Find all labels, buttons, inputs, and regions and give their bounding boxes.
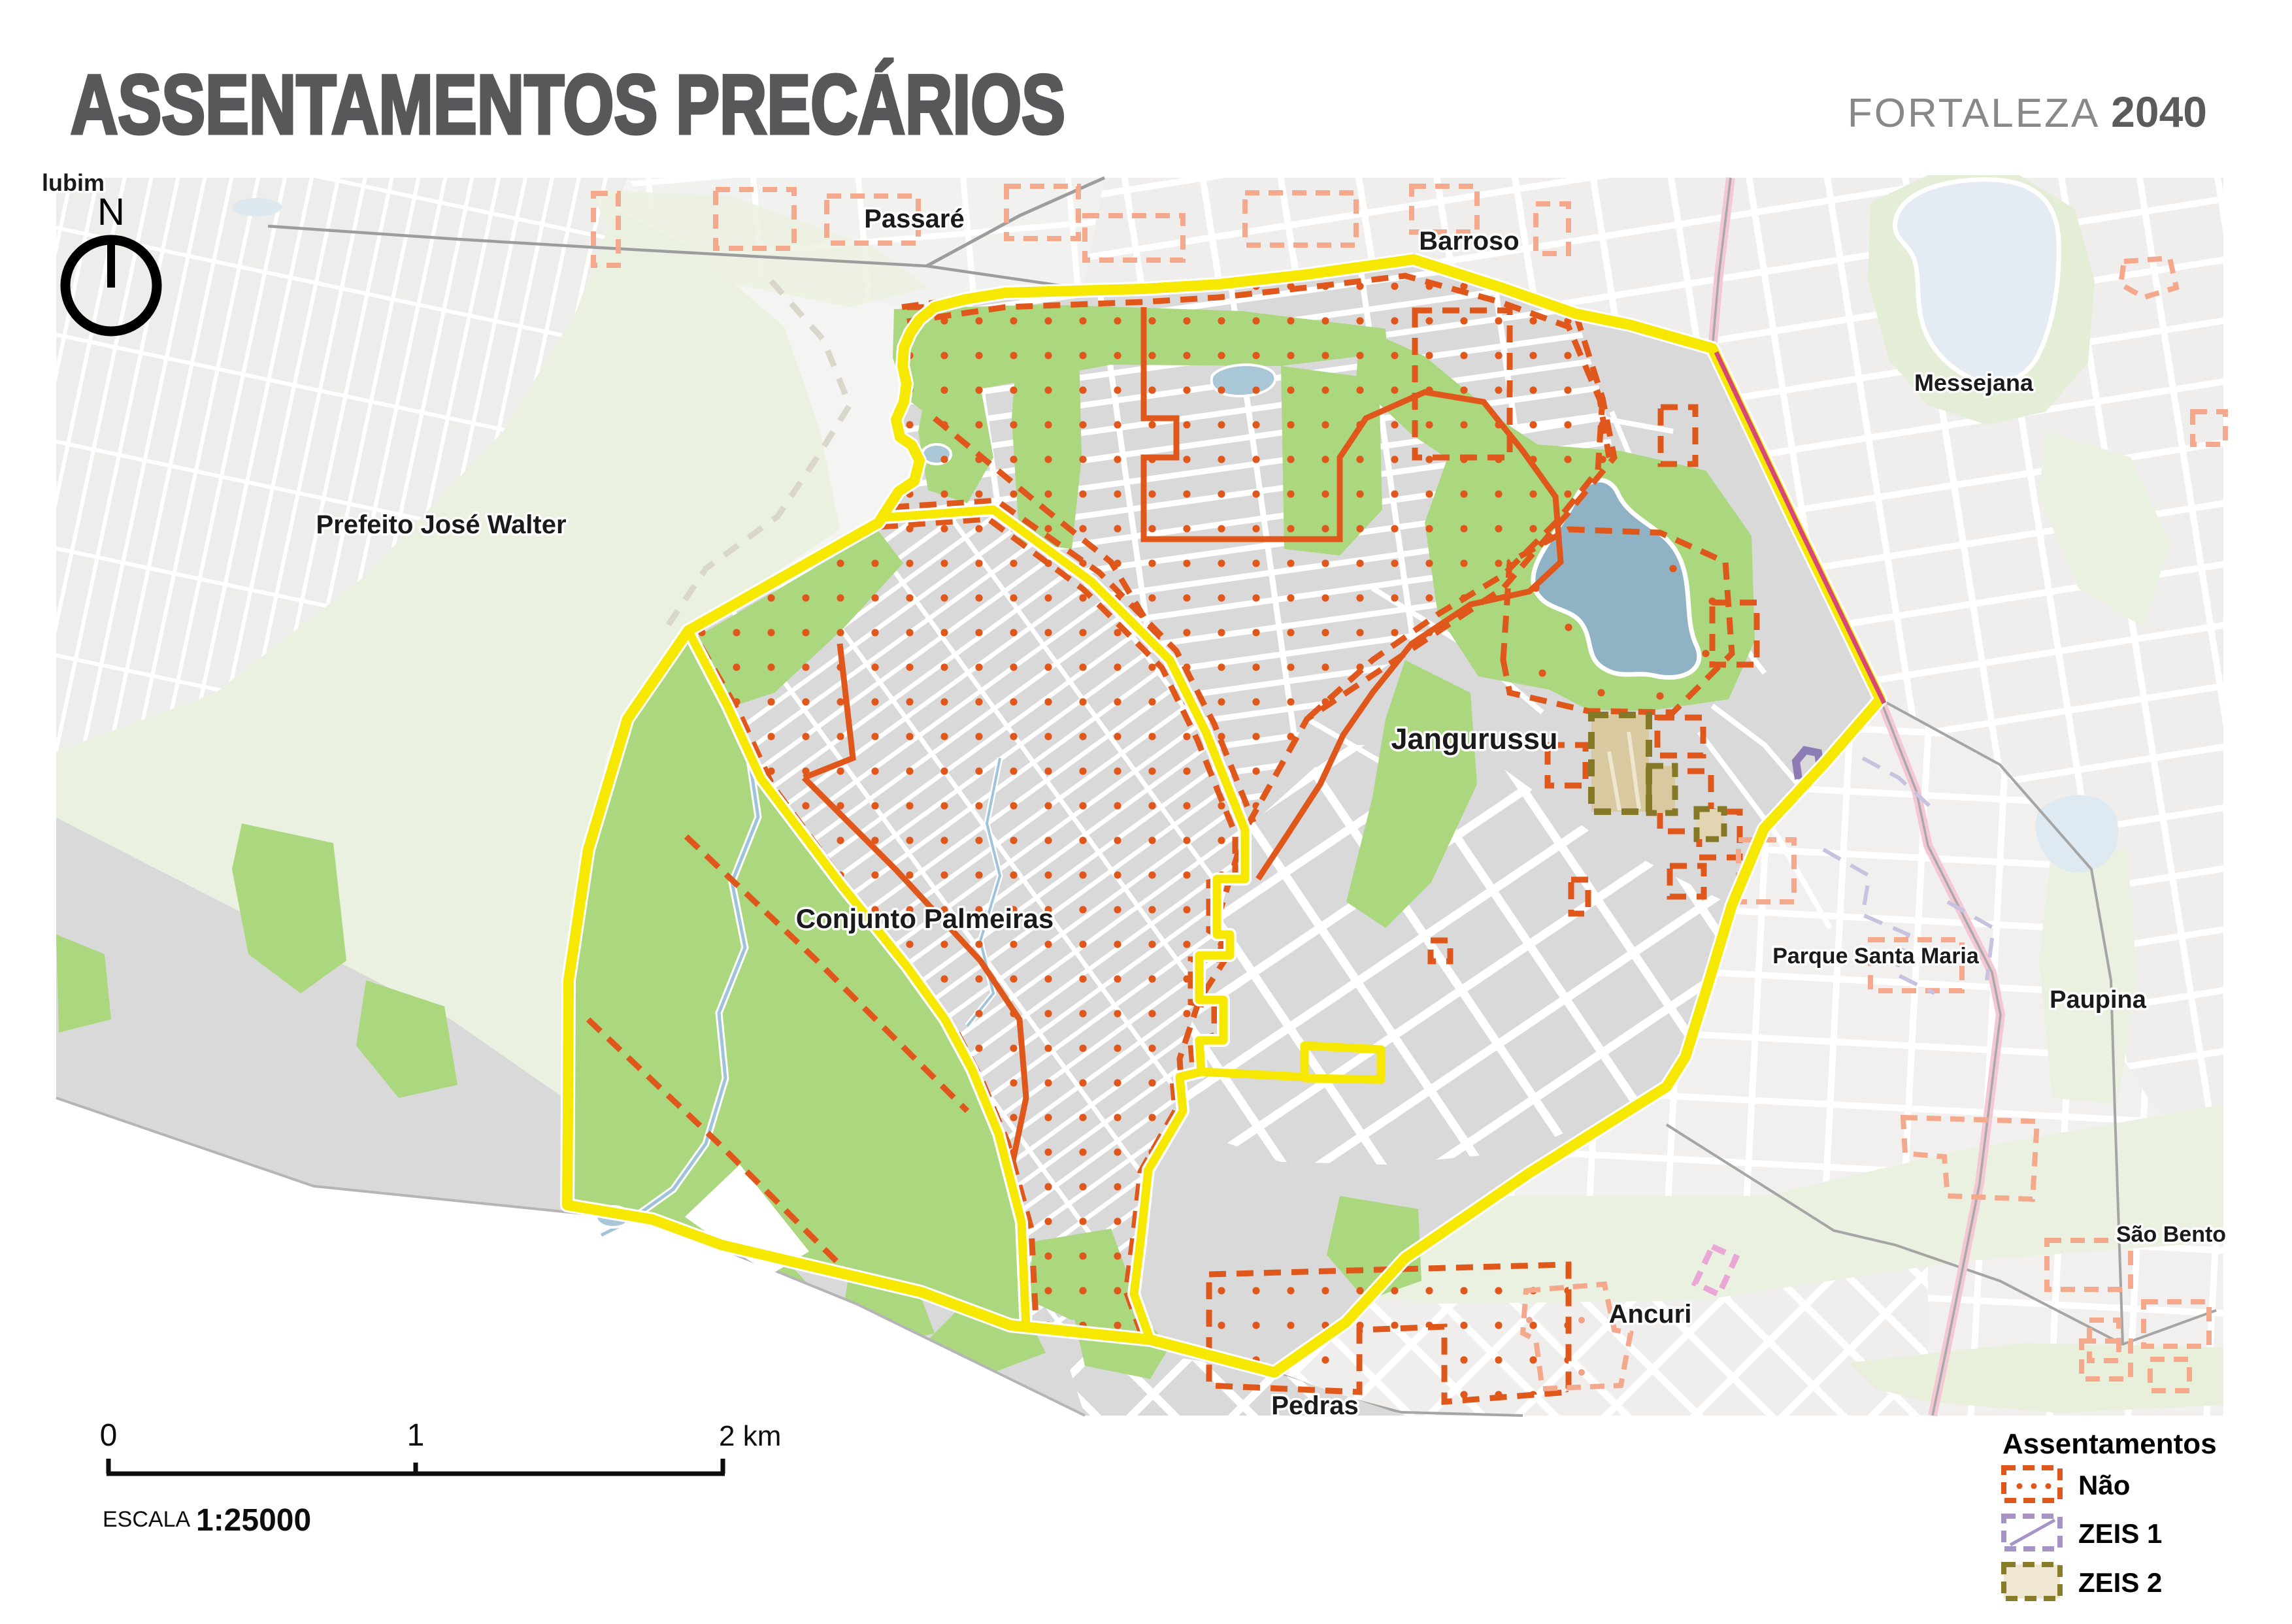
svg-text:Parque Santa Maria: Parque Santa Maria (1772, 944, 1980, 969)
svg-text:Jangurussu: Jangurussu (1391, 722, 1557, 755)
svg-text:Conjunto Palmeiras: Conjunto Palmeiras (796, 903, 1054, 934)
svg-text:0: 0 (100, 1418, 118, 1453)
svg-text:FORTALEZA 2040: FORTALEZA 2040 (1848, 88, 2207, 136)
svg-text:N: N (97, 191, 125, 233)
svg-text:1: 1 (407, 1418, 425, 1453)
svg-text:Barroso: Barroso (1419, 227, 1519, 256)
svg-text:Passaré: Passaré (864, 205, 964, 233)
svg-text:Assentamentos: Assentamentos (2002, 1428, 2217, 1460)
svg-text:ZEIS 1: ZEIS 1 (2078, 1518, 2162, 1549)
svg-text:Ancuri: Ancuri (1609, 1300, 1692, 1329)
svg-text:Paupina: Paupina (2050, 986, 2147, 1014)
svg-text:lubim: lubim (42, 169, 105, 196)
svg-text:ASSENTAMENTOS PRECÁRIOS: ASSENTAMENTOS PRECÁRIOS (71, 58, 1065, 152)
svg-text:São Bento: São Bento (2116, 1222, 2226, 1247)
svg-text:ZEIS 2: ZEIS 2 (2078, 1567, 2162, 1598)
svg-text:2 km: 2 km (719, 1420, 781, 1452)
svg-text:Prefeito José Walter: Prefeito José Walter (316, 510, 566, 539)
svg-text:ESCALA: ESCALA (103, 1507, 190, 1532)
svg-text:Pedras: Pedras (1271, 1391, 1358, 1420)
svg-text:1:25000: 1:25000 (196, 1503, 311, 1538)
svg-text:Messejana: Messejana (1914, 369, 2034, 396)
svg-text:Não: Não (2078, 1470, 2130, 1500)
